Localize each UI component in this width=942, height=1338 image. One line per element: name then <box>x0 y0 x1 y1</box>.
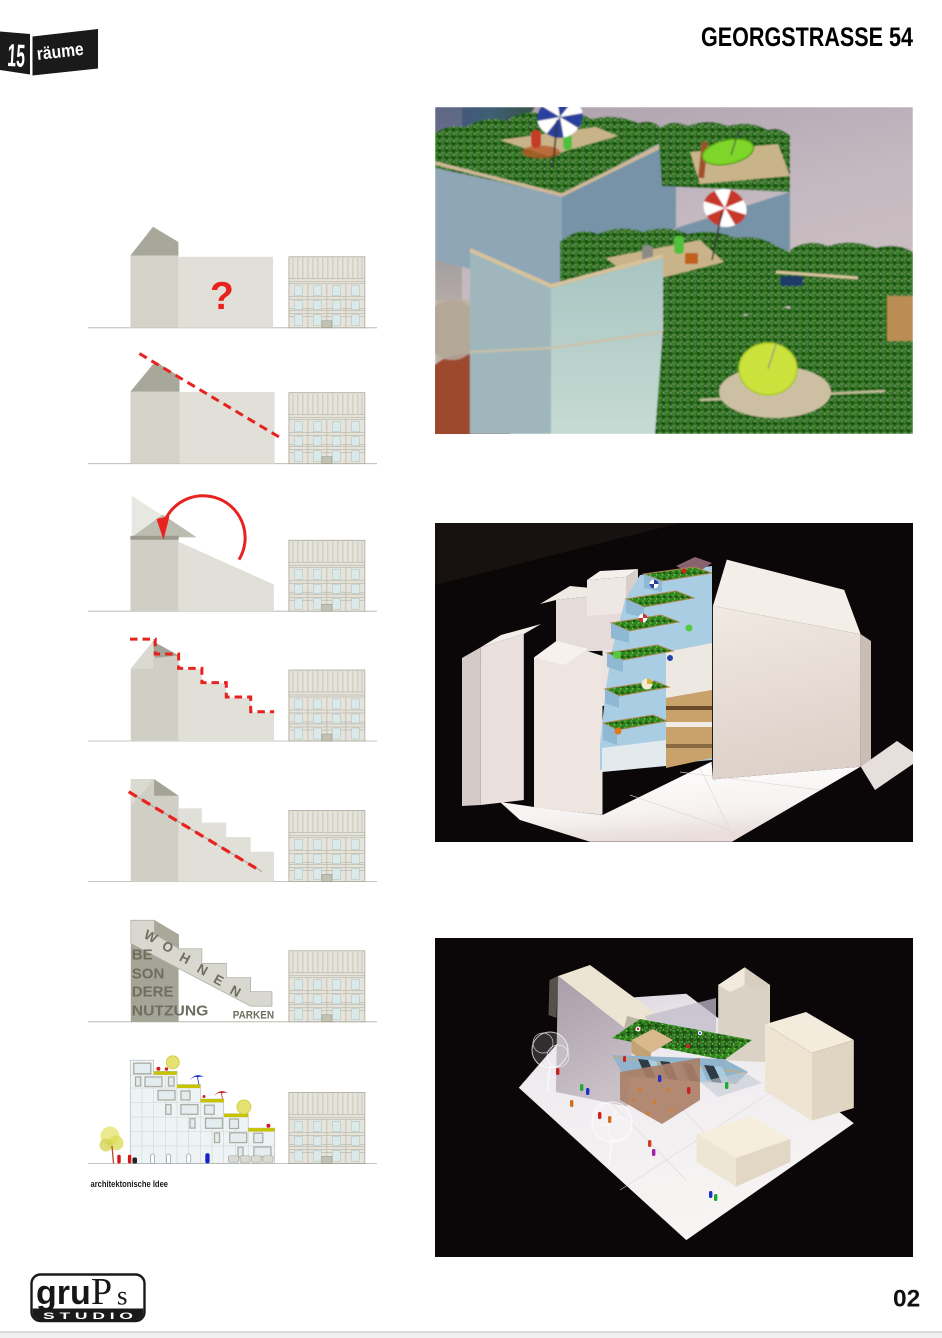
svg-text:NUTZUNG: NUTZUNG <box>132 1003 209 1020</box>
svg-text:gru: gru <box>36 1274 91 1312</box>
svg-text:15: 15 <box>7 37 26 74</box>
svg-text:GEORGSTRASSE 54: GEORGSTRASSE 54 <box>701 22 913 52</box>
svg-text:S T U D I O: S T U D I O <box>43 1311 133 1321</box>
svg-text:?: ? <box>210 275 234 318</box>
svg-text:BE: BE <box>132 946 153 963</box>
svg-text:02: 02 <box>893 1285 920 1312</box>
svg-text:PARKEN: PARKEN <box>233 1010 274 1022</box>
svg-text:architektonische Idee: architektonische Idee <box>91 1179 169 1189</box>
svg-text:DERE: DERE <box>132 984 174 1001</box>
svg-text:SON: SON <box>132 966 165 983</box>
svg-text:s: s <box>117 1281 128 1311</box>
svg-text:P: P <box>91 1271 112 1313</box>
